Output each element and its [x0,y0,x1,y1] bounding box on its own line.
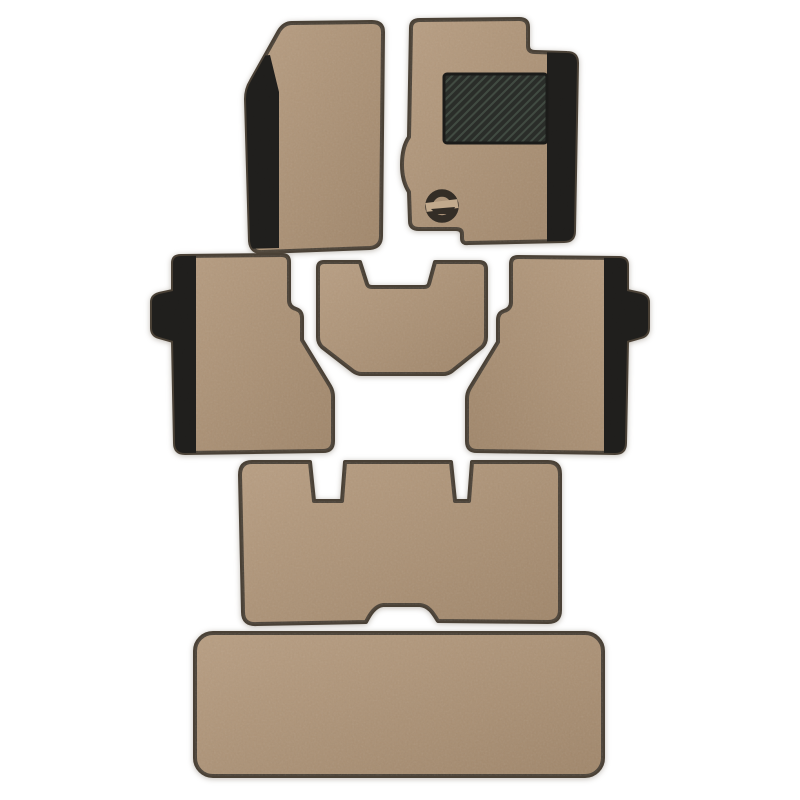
bench-mat [235,458,565,630]
carbon-fiber-heel-pad [444,74,547,143]
carpet-texture [235,458,565,630]
product-photo [0,0,800,800]
carpet-texture [190,630,610,780]
boot-mat [190,630,610,780]
floor-mat-set-illustration [0,0,800,800]
